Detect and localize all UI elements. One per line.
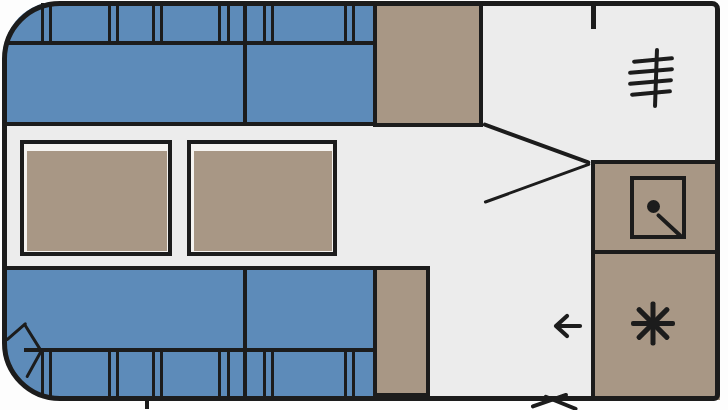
caravan-outer-wall [2,1,720,401]
under-wall-mark [145,396,149,409]
floor-plan-canvas [0,0,728,410]
partition-wall-stub [591,1,596,29]
